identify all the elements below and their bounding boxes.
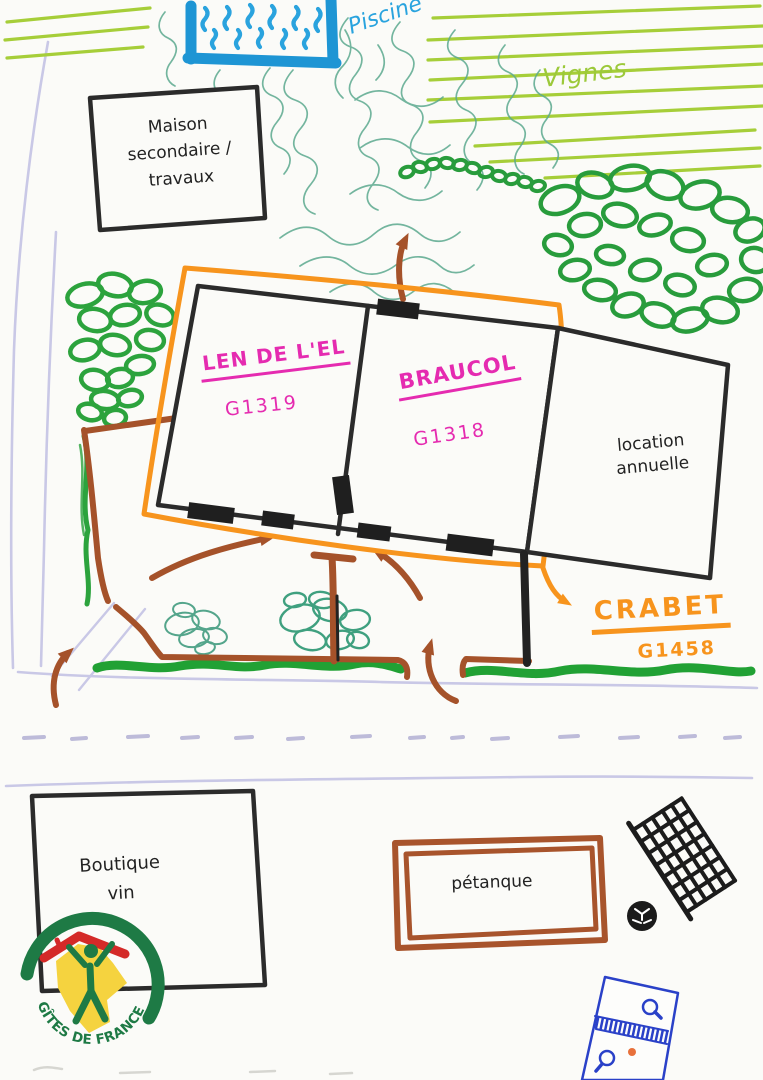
crabet-arrow: [543, 568, 566, 602]
garden-bush-left: [163, 602, 228, 656]
ball: [628, 1048, 636, 1056]
goal-net-icon: [629, 792, 740, 919]
soccer-ball-icon: [627, 901, 657, 931]
gate-post-line: [337, 596, 338, 660]
site-map: GÎTES DE FRANCE Piscine Vignes Maison se…: [0, 0, 763, 1080]
gate-post: [332, 557, 334, 661]
petanque-court-icon: [395, 838, 605, 948]
garden-bush-right: [277, 590, 371, 652]
gite-crabet-name: CRABET: [590, 590, 730, 635]
annual-rental-label: location annuelle: [594, 427, 710, 482]
swimming-pool-icon: [188, 0, 336, 63]
wine-shop-label: Boutique vin: [58, 848, 183, 912]
fence-post: [524, 554, 527, 663]
petanque-label: pétanque: [451, 871, 533, 894]
gite-crabet-code: G1458: [637, 637, 717, 663]
right-tree-canopy: [537, 163, 763, 335]
road-center-dashes: [24, 736, 740, 739]
paper-smudges: [34, 1067, 352, 1074]
ping-pong-table-icon: [582, 977, 678, 1080]
secondary-house-label: Maison secondaire / travaux: [102, 108, 257, 197]
